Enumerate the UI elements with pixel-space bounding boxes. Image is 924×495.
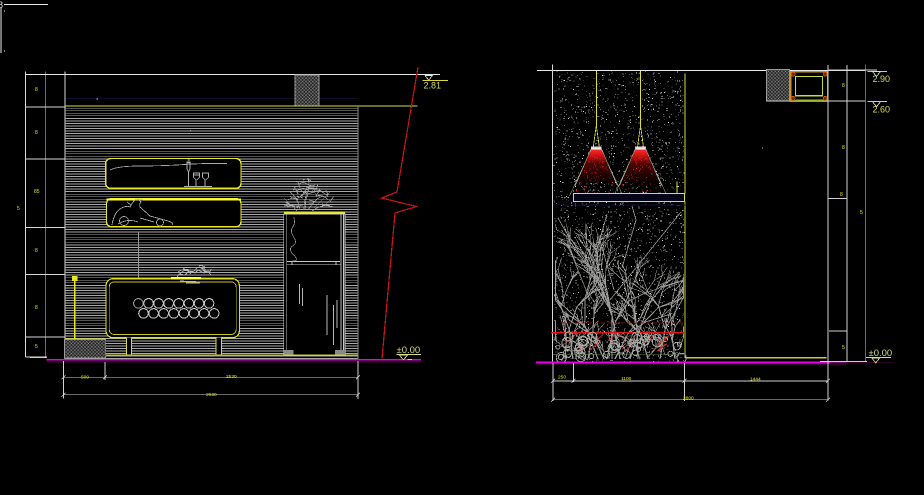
- svg-text:250: 250: [558, 375, 566, 381]
- svg-text:1444: 1444: [750, 377, 761, 383]
- svg-text:2800: 2800: [683, 395, 694, 401]
- svg-text:5: 5: [35, 344, 38, 350]
- svg-text:5: 5: [860, 210, 863, 216]
- svg-text:2530: 2530: [226, 374, 237, 380]
- svg-text:5: 5: [842, 345, 845, 351]
- svg-text:1100: 1100: [621, 376, 632, 382]
- svg-text:8: 8: [35, 248, 38, 254]
- svg-text:8: 8: [35, 130, 38, 136]
- svg-text:2.60: 2.60: [873, 105, 891, 115]
- svg-text:5: 5: [17, 206, 20, 212]
- svg-text:8: 8: [842, 145, 845, 151]
- svg-text:2.90: 2.90: [873, 74, 891, 84]
- svg-text:500: 500: [81, 375, 89, 381]
- svg-text:2.81: 2.81: [424, 81, 442, 91]
- svg-text:8: 8: [842, 83, 845, 89]
- svg-text:8: 8: [35, 87, 38, 93]
- svg-text:2930: 2930: [206, 392, 217, 398]
- svg-text:8: 8: [840, 192, 843, 198]
- svg-text:85: 85: [34, 189, 40, 195]
- svg-text:8: 8: [35, 305, 38, 311]
